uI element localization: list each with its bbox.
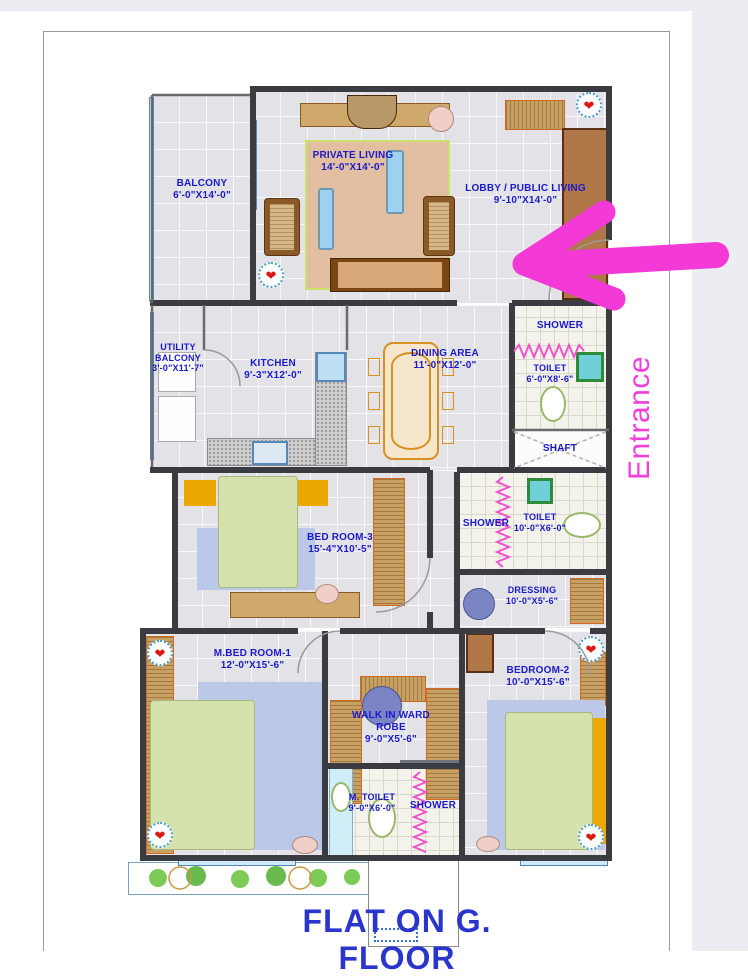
room-name: SHAFT [543, 443, 577, 455]
room-name: DINING AREA [411, 348, 479, 360]
ceiling-fan-icon: ❤ [576, 92, 602, 118]
living-lounger-left [318, 188, 334, 250]
label-private-living: PRIVATE LIVING 14'-0"X14'-0" [288, 150, 418, 174]
dining-chair [368, 426, 380, 444]
label-shower1: SHOWER [528, 320, 592, 332]
room-dims: 6'-0"X8'-6" [526, 374, 573, 385]
bedroom3-pillow-right [298, 480, 328, 506]
label-bedroom2: BEDROOM-2 10'-0"X15'-6" [478, 665, 598, 689]
bedroom2-side-table [476, 836, 500, 852]
utility-window [150, 312, 154, 460]
room-name: SHOWER [537, 320, 583, 332]
living-side-table [428, 106, 454, 132]
armchair-cushion [270, 204, 294, 250]
room-name: UTILITY BALCONY [149, 342, 207, 363]
planter-box [128, 862, 372, 895]
room-name: TOILET [533, 363, 566, 374]
room-name: SHOWER [463, 518, 509, 530]
lobby-cabinet [505, 100, 565, 130]
label-mtoilet: M. TOILET 9'-0"X6'-0" [338, 792, 406, 813]
room-name: BEDROOM-2 [507, 665, 570, 677]
room-dims: 10'-0"X5'-6" [506, 596, 558, 607]
bedroom3-chair [315, 584, 339, 604]
label-kitchen: KITCHEN 9'-3"X12'-0" [228, 358, 318, 382]
room-name: KITCHEN [250, 358, 296, 370]
page-margin-right [692, 0, 748, 951]
room-dims: 15'-4"X10'-5" [308, 544, 372, 556]
dining-chair [368, 358, 380, 376]
room-dims: 9'-0"X5'-6" [365, 734, 417, 746]
plan-title: FLAT ON G. FLOOR [242, 903, 552, 977]
room-name: WALK IN WARD ROBE [352, 710, 430, 734]
label-bedroom3: BED ROOM-3 15'-4"X10'-5" [285, 532, 395, 556]
ceiling-fan-icon: ❤ [578, 636, 604, 662]
label-shaft: SHAFT [535, 443, 585, 455]
room-dims: 14'-0"X14'-0" [321, 162, 385, 174]
label-lobby: LOBBY / PUBLIC LIVING 9'-10"X14'-0" [448, 183, 603, 207]
room-name: BED ROOM-3 [307, 532, 373, 544]
room-dims: 9'-0"X6'-0" [348, 803, 395, 814]
room-name: M.BED ROOM-1 [214, 648, 291, 660]
armchair-cushion [429, 202, 449, 250]
dressing-stool [463, 588, 495, 620]
lobby-tall-unit [562, 128, 608, 300]
label-toilet2: TOILET 10'-0"X6'-0" [504, 512, 576, 533]
room-name: BALCONY [177, 178, 228, 190]
room-dims: 11'-0"X12'-0" [414, 360, 477, 372]
label-mbedroom1: M.BED ROOM-1 12'-0"X15'-6" [185, 648, 320, 672]
label-toilet1: TOILET 6'-0"X8'-6" [518, 363, 582, 384]
room-dims: 3'-0"X11'-7" [152, 363, 204, 374]
room-name: PRIVATE LIVING [313, 150, 394, 162]
room-dims: 9'-10"X14'-0" [494, 195, 558, 207]
utility-tub [158, 396, 196, 442]
living-credenza-top [338, 262, 442, 288]
room-name: SHOWER [410, 800, 456, 812]
kitchen-sink [316, 352, 346, 382]
label-dressing: DRESSING 10'-0"X5'-6" [492, 585, 572, 606]
room-name: DRESSING [508, 585, 557, 596]
label-utility-balcony: UTILITY BALCONY 3'-0"X11'-7" [149, 342, 207, 374]
walkin-threshold [400, 760, 462, 768]
room-dims: 6'-0"X14'-0" [173, 190, 231, 202]
living-piano [347, 95, 397, 129]
bedroom3-desk [230, 592, 360, 618]
ceiling-fan-icon: ❤ [147, 640, 173, 666]
bedroom3-pillow-left [184, 480, 216, 506]
room-dims: 12'-0"X15'-6" [221, 660, 285, 672]
screenshot-root: { "meta": { "title": "FLAT ON G. FLOOR",… [0, 0, 748, 951]
walkin-unit-right [426, 688, 460, 800]
toilet1-wc [540, 386, 566, 422]
room-name: M. TOILET [349, 792, 395, 803]
label-dining: DINING AREA 11'-0"X12'-0" [380, 348, 510, 372]
corridor-floor [430, 470, 457, 628]
mbedroom1-window [178, 857, 296, 866]
bedroom2-window [520, 857, 608, 866]
room-dims: 10'-0"X15'-6" [506, 677, 570, 689]
ceiling-fan-icon: ❤ [578, 824, 604, 850]
room-dims: 10'-0"X6'-0" [514, 523, 566, 534]
dressing-wardrobe [570, 578, 604, 624]
entrance-annotation: Entrance [623, 303, 663, 533]
mbedroom1-side-table [292, 836, 318, 854]
label-shower3: SHOWER [402, 800, 464, 812]
dining-chair [442, 392, 454, 410]
label-walkin: WALK IN WARD ROBE 9'-0"X5'-6" [352, 710, 430, 745]
living-armchair-left [264, 198, 300, 256]
label-balcony: BALCONY 6'-0"X14'-0" [152, 178, 252, 202]
dining-chair [442, 426, 454, 444]
room-name: TOILET [523, 512, 556, 523]
room-dims: 9'-3"X12'-0" [244, 370, 302, 382]
room-name: LOBBY / PUBLIC LIVING [465, 183, 586, 195]
dining-chair [368, 392, 380, 410]
ceiling-fan-icon: ❤ [258, 262, 284, 288]
kitchen-stove [252, 441, 288, 465]
page-margin-top [0, 0, 748, 11]
ceiling-fan-icon: ❤ [147, 822, 173, 848]
toilet2-sink [527, 478, 553, 504]
